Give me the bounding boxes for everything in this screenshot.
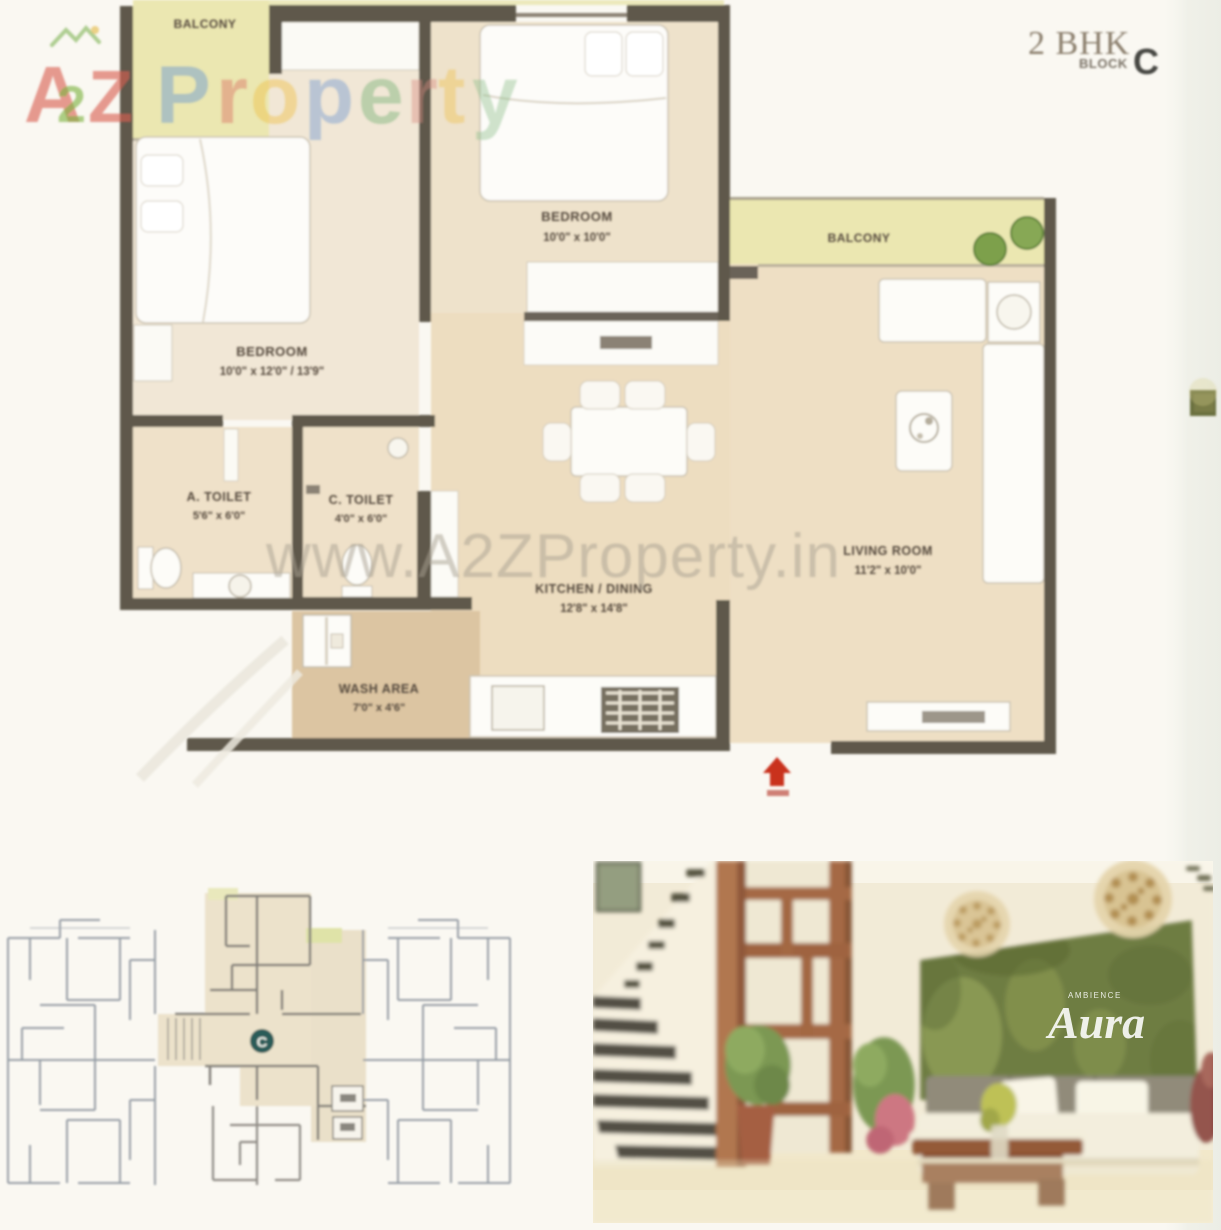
svg-text:C. TOILET: C. TOILET bbox=[329, 493, 394, 507]
svg-text:P: P bbox=[156, 50, 211, 141]
svg-text:r: r bbox=[216, 50, 248, 141]
svg-text:C: C bbox=[257, 1034, 268, 1051]
svg-text:5'6" x 6'0": 5'6" x 6'0" bbox=[193, 510, 245, 522]
svg-text:C: C bbox=[1133, 41, 1159, 82]
svg-text:y: y bbox=[472, 50, 518, 141]
svg-text:LIVING ROOM: LIVING ROOM bbox=[843, 544, 933, 558]
svg-text:o: o bbox=[250, 50, 300, 141]
svg-text:10'0" x 10'0": 10'0" x 10'0" bbox=[543, 232, 611, 244]
svg-text:www.A2ZProperty.in: www.A2ZProperty.in bbox=[265, 522, 841, 591]
svg-text:p: p bbox=[304, 50, 354, 141]
svg-text:10'0" x 12'0" / 13'9": 10'0" x 12'0" / 13'9" bbox=[220, 366, 325, 378]
svg-text:A. TOILET: A. TOILET bbox=[187, 490, 252, 504]
svg-text:2: 2 bbox=[57, 76, 86, 134]
svg-text:BEDROOM: BEDROOM bbox=[236, 344, 307, 359]
svg-text:BEDROOM: BEDROOM bbox=[541, 209, 612, 224]
svg-text:e: e bbox=[358, 50, 404, 141]
svg-text:Aura: Aura bbox=[1045, 997, 1145, 1048]
svg-text:r: r bbox=[406, 50, 438, 141]
svg-text:7'0" x 4'6": 7'0" x 4'6" bbox=[353, 702, 405, 714]
svg-text:Z: Z bbox=[88, 55, 133, 138]
svg-text:t: t bbox=[438, 50, 465, 141]
svg-text:11'2" x 10'0": 11'2" x 10'0" bbox=[855, 565, 922, 577]
svg-text:BALCONY: BALCONY bbox=[174, 17, 237, 31]
svg-text:BLOCK: BLOCK bbox=[1079, 56, 1128, 71]
svg-text:BALCONY: BALCONY bbox=[828, 231, 891, 245]
svg-text:WASH AREA: WASH AREA bbox=[339, 682, 419, 696]
svg-text:12'8" x 14'8": 12'8" x 14'8" bbox=[560, 603, 628, 615]
